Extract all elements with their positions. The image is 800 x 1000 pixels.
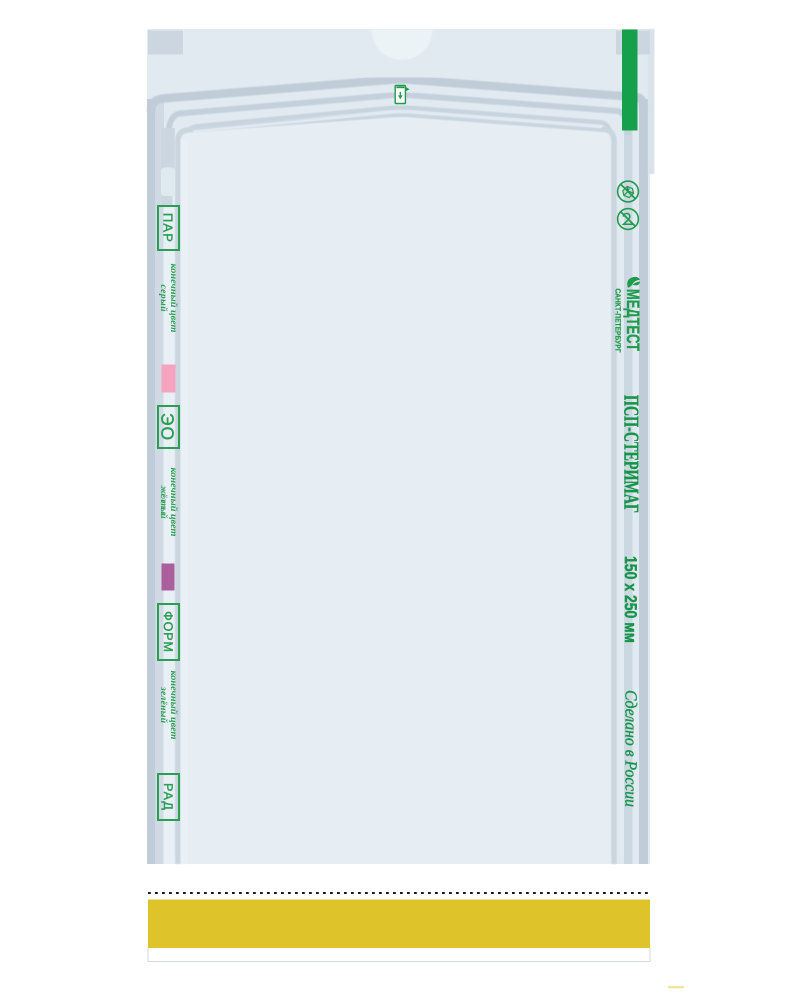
svg-text:ПСП-СТЕРИМАГ: ПСП-СТЕРИМАГ [620,395,644,513]
svg-text:150 х 250 мм: 150 х 250 мм [621,556,640,643]
svg-text:МЕДТЕСТ: МЕДТЕСТ [623,289,643,351]
svg-text:САНКТ-ПЕТЕРБУРГ: САНКТ-ПЕТЕРБУРГ [614,289,623,354]
svg-text:ЭО: ЭО [158,413,178,441]
svg-text:Сделано в России: Сделано в России [622,690,641,807]
svg-text:ПАР: ПАР [161,213,176,243]
svg-text:РАД: РАД [161,783,175,811]
svg-text:ФОРМ: ФОРМ [161,611,175,653]
